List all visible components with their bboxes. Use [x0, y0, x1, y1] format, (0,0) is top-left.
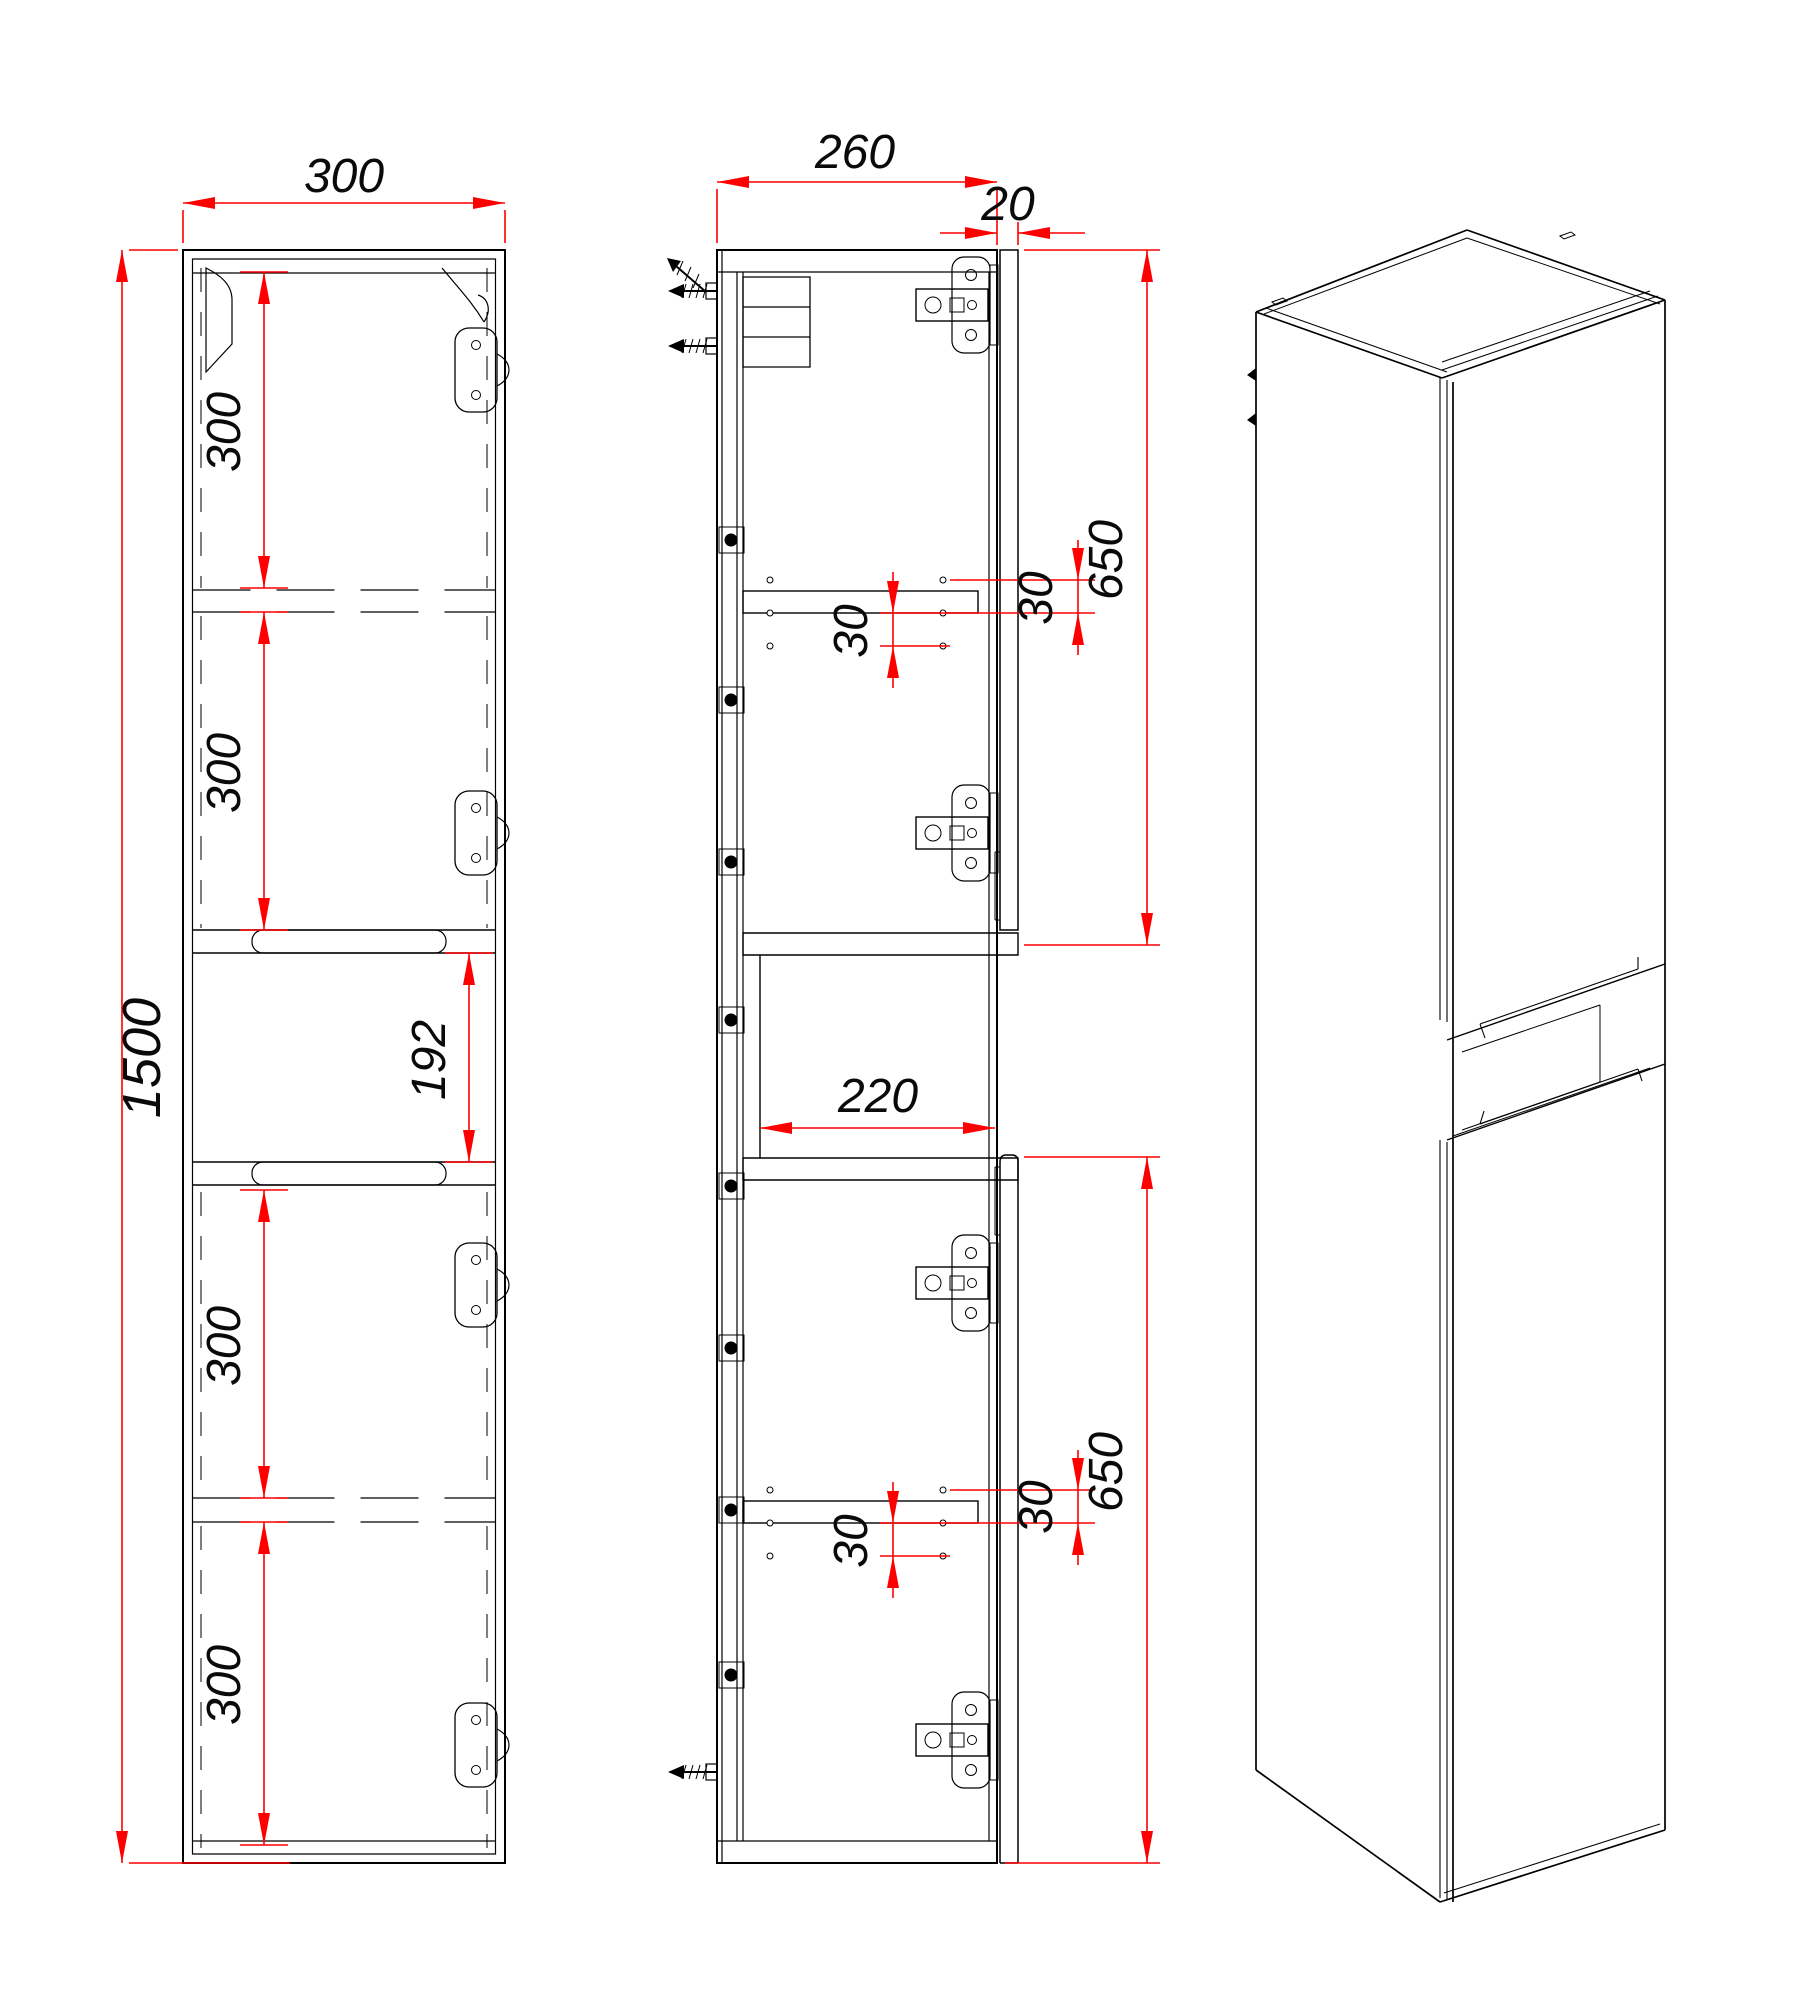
technical-drawing-canvas: 300 1500 300 300 192 300 300 [0, 0, 1800, 2000]
hinge-icon [455, 1703, 509, 1787]
dim-side-door-thickness-label: 20 [980, 178, 1035, 231]
dim-front-top-section-a-label: 300 [198, 392, 251, 472]
dim-side-depth-label: 260 [814, 126, 895, 179]
side-inner-lines [717, 250, 997, 1863]
iso-bracket-tabs [1247, 368, 1256, 426]
shelf-pin-holes [767, 577, 946, 1559]
cup-hinge-icon [916, 1692, 998, 1788]
hinge-icon [455, 791, 509, 875]
cup-hinge-icon [916, 785, 998, 881]
iso-bottom-edges [1256, 1770, 1665, 1902]
lower-door-grip-recess [252, 1162, 446, 1185]
dim-front-width-label: 300 [304, 150, 384, 203]
upper-door-grip-recess [252, 930, 446, 953]
dim-side-upper-hole-pitch-front-label: 30 [1010, 571, 1063, 625]
side-outline [717, 250, 997, 1863]
wall-screw-icon [668, 338, 717, 354]
dim-side-niche-depth-label: 220 [837, 1070, 918, 1123]
niche-panels [743, 933, 1018, 1180]
back-panel-screws [719, 527, 744, 1688]
side-view: 260 20 650 30 30 220 650 30 30 [667, 126, 1160, 1863]
iso-vertical-edges [1256, 300, 1665, 1902]
wall-hanger-bracket [743, 277, 810, 367]
drawing-sheet: 300 1500 300 300 192 300 300 [0, 0, 1800, 2000]
hinge-icon [455, 328, 509, 412]
dim-front-niche-label: 192 [403, 1020, 456, 1100]
side-dimension-arrows [717, 176, 1153, 1863]
dim-side-lower-door-label: 650 [1080, 1432, 1133, 1512]
front-outline [183, 250, 505, 1863]
back-panel-lines [737, 272, 743, 1841]
dim-side-upper-door-label: 650 [1080, 520, 1133, 600]
dim-front-top-section-b-label: 300 [198, 733, 251, 813]
iso-upper-grip [1480, 957, 1638, 1038]
iso-top-face-inner [1264, 238, 1660, 372]
wall-screw-icon [668, 1764, 717, 1780]
iso-door-edge-lines [1440, 378, 1447, 1900]
iso-lower-door-top [1447, 1064, 1665, 1140]
dim-front-bottom-section-a-label: 300 [198, 1306, 251, 1386]
iso-bottom-inner [1444, 1824, 1660, 1893]
side-dimension-lines [717, 182, 1160, 1863]
dim-front-bottom-section-b-label: 300 [198, 1645, 251, 1725]
dim-side-upper-hole-pitch-back-label: 30 [825, 604, 878, 658]
isometric-view [1247, 230, 1665, 1902]
dim-front-height-label: 1500 [112, 998, 172, 1118]
iso-upper-door-bottom [1447, 964, 1665, 1040]
front-view: 300 1500 300 300 192 300 300 [112, 150, 509, 1863]
dim-side-lower-hole-pitch-front-label: 30 [1010, 1480, 1063, 1534]
hinge-icon [455, 1243, 509, 1327]
wall-bracket-right-icon [442, 268, 488, 322]
wall-screw-icon [668, 283, 717, 299]
cup-hinge-icon [916, 1235, 998, 1331]
dim-side-lower-hole-pitch-back-label: 30 [825, 1514, 878, 1568]
angled-screw-icon [667, 258, 706, 292]
wall-bracket-icon [206, 268, 232, 372]
